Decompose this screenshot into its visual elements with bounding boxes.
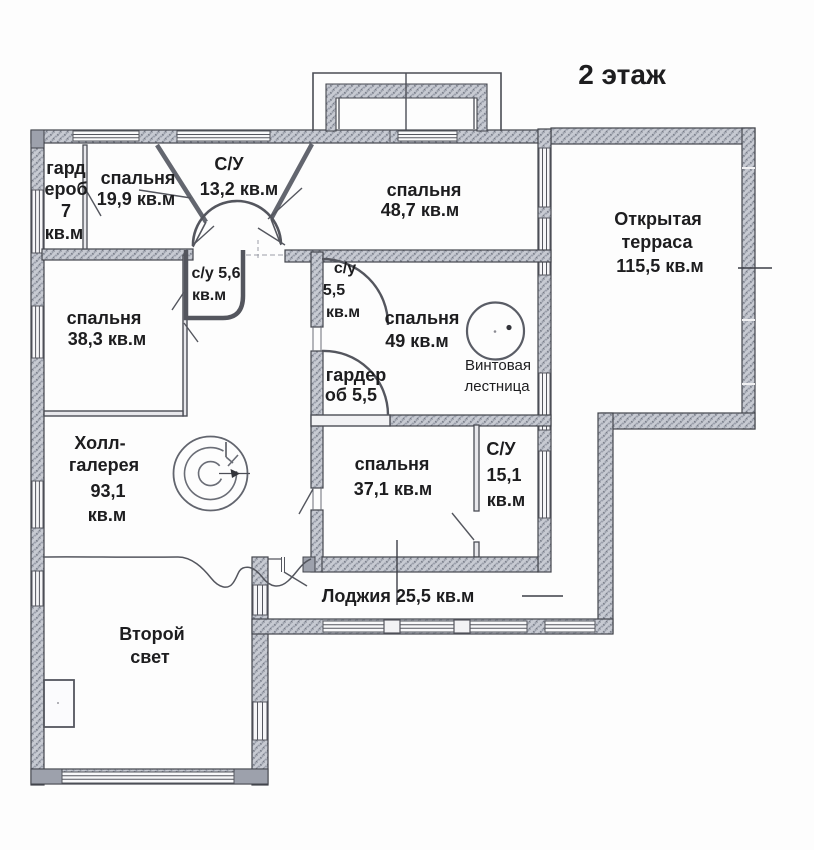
svg-text:15,1: 15,1 bbox=[486, 465, 521, 485]
svg-text:37,1 кв.м: 37,1 кв.м bbox=[354, 479, 432, 499]
svg-text:38,3 кв.м: 38,3 кв.м bbox=[68, 329, 146, 349]
svg-text:кв.м: кв.м bbox=[192, 287, 226, 304]
svg-text:115,5 кв.м: 115,5 кв.м bbox=[616, 256, 703, 276]
svg-text:7: 7 bbox=[61, 201, 71, 221]
svg-text:13,2 кв.м: 13,2 кв.м bbox=[200, 179, 278, 199]
svg-text:свет: свет bbox=[130, 647, 170, 667]
svg-text:Лоджия 25,5 кв.м: Лоджия 25,5 кв.м bbox=[322, 586, 475, 606]
svg-text:спальня: спальня bbox=[101, 168, 176, 188]
svg-text:5,5: 5,5 bbox=[323, 282, 345, 299]
svg-text:об 5,5: об 5,5 bbox=[325, 385, 377, 405]
svg-text:кв.м: кв.м bbox=[88, 505, 126, 525]
svg-text:Холл-: Холл- bbox=[74, 433, 125, 453]
svg-text:93,1: 93,1 bbox=[90, 481, 125, 501]
svg-text:С/У: С/У bbox=[214, 154, 244, 174]
svg-text:кв.м: кв.м bbox=[487, 490, 525, 510]
svg-text:галерея: галерея bbox=[69, 455, 139, 475]
svg-text:спальня: спальня bbox=[355, 454, 430, 474]
svg-text:С/У: С/У bbox=[486, 439, 516, 459]
svg-text:Второй: Второй bbox=[119, 624, 184, 644]
svg-text:Открытая: Открытая bbox=[614, 209, 702, 229]
svg-text:спальня: спальня bbox=[385, 308, 460, 328]
svg-text:терраса: терраса bbox=[621, 232, 693, 252]
svg-text:гард: гард bbox=[46, 158, 86, 178]
svg-text:спальня: спальня bbox=[387, 180, 462, 200]
svg-text:с/у 5,6: с/у 5,6 bbox=[192, 265, 241, 282]
svg-text:19,9 кв.м: 19,9 кв.м bbox=[97, 189, 175, 209]
svg-text:49 кв.м: 49 кв.м bbox=[385, 331, 448, 351]
svg-text:кв.м: кв.м bbox=[326, 304, 360, 321]
svg-text:Винтовая: Винтовая bbox=[465, 357, 531, 374]
svg-text:кв.м: кв.м bbox=[45, 223, 83, 243]
svg-text:лестница: лестница bbox=[464, 378, 530, 395]
svg-text:с/у: с/у bbox=[334, 260, 356, 277]
svg-text:гардер: гардер bbox=[326, 365, 387, 385]
svg-text:2 этаж: 2 этаж bbox=[578, 59, 667, 90]
svg-text:ероб: ероб bbox=[44, 179, 87, 199]
svg-text:спальня: спальня bbox=[67, 308, 142, 328]
svg-text:48,7 кв.м: 48,7 кв.м bbox=[381, 200, 459, 220]
